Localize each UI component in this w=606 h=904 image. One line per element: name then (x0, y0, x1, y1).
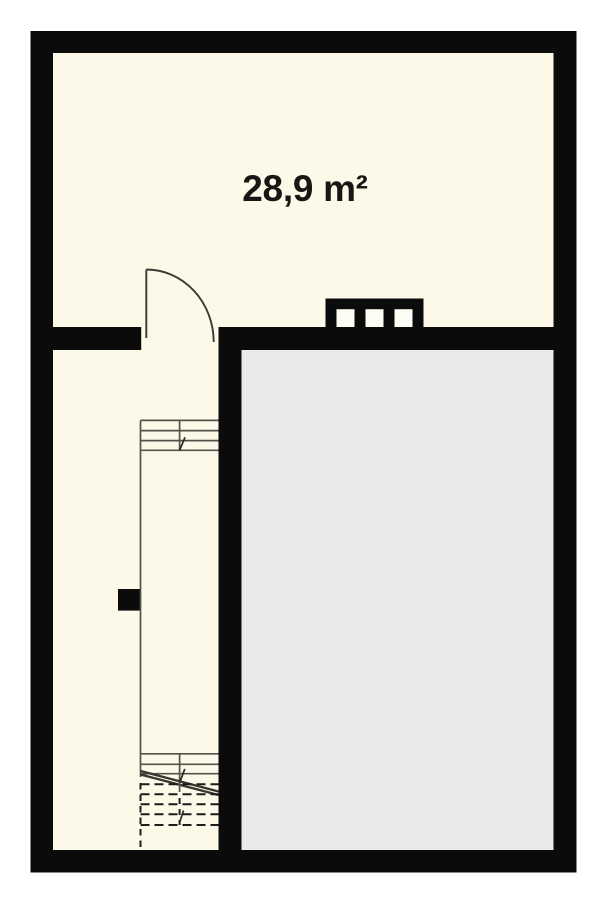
svg-text:28,9 m²: 28,9 m² (242, 168, 367, 209)
